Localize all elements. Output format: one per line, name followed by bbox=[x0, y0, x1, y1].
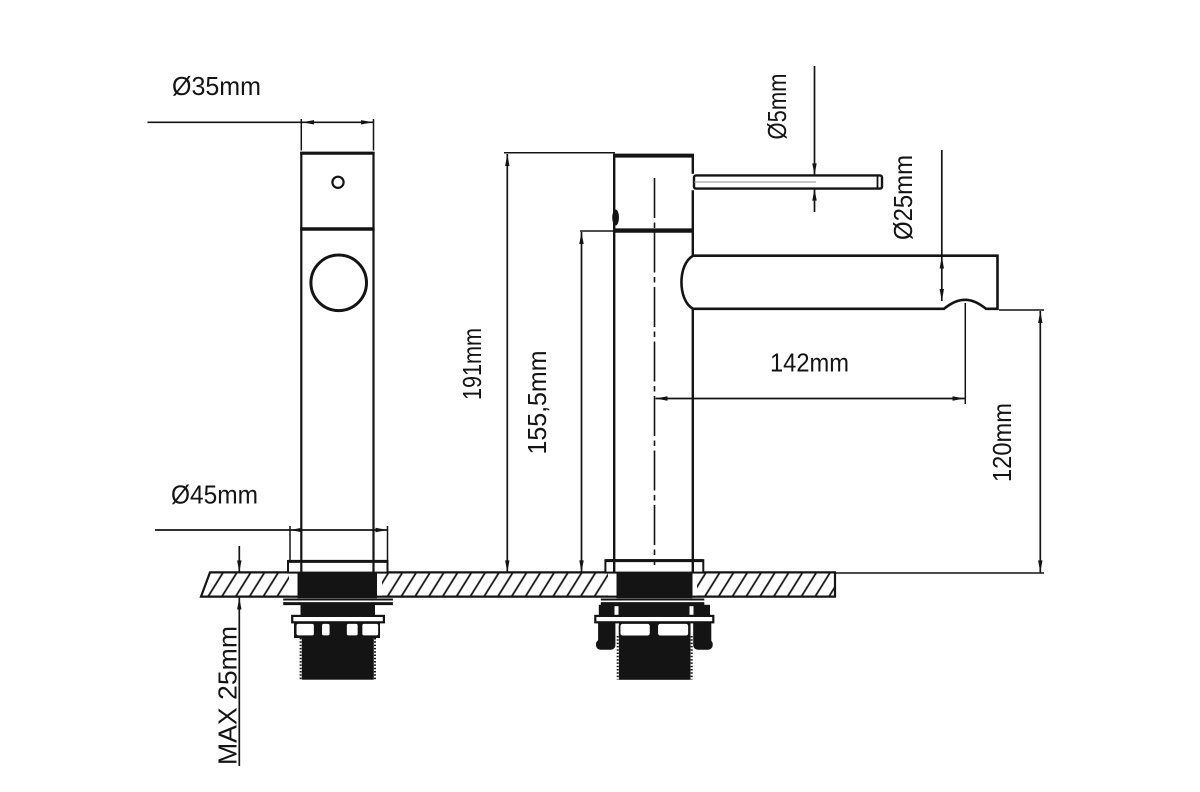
svg-text:191mm: 191mm bbox=[457, 328, 487, 400]
svg-text:MAX 25mm: MAX 25mm bbox=[213, 626, 243, 765]
svg-text:Ø45mm: Ø45mm bbox=[171, 480, 258, 510]
svg-text:Ø35mm: Ø35mm bbox=[172, 71, 261, 101]
svg-text:120mm: 120mm bbox=[987, 403, 1017, 482]
svg-text:142mm: 142mm bbox=[770, 348, 849, 378]
svg-text:Ø25mm: Ø25mm bbox=[888, 155, 918, 240]
svg-text:Ø5mm: Ø5mm bbox=[762, 74, 792, 140]
svg-text:155,5mm: 155,5mm bbox=[522, 351, 552, 455]
